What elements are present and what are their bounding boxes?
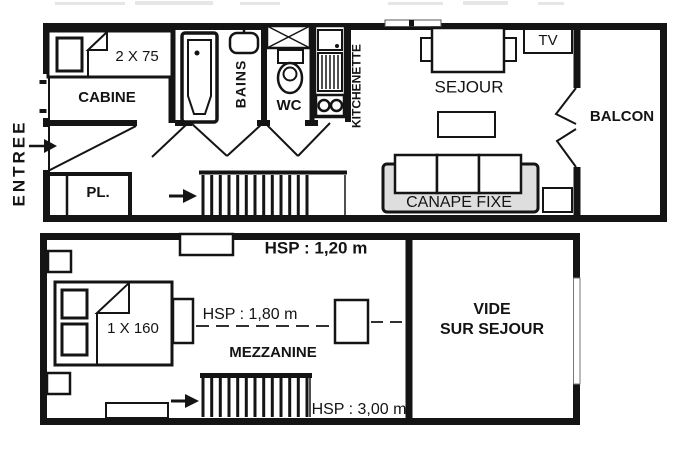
wall-cabinet-symbol — [48, 251, 71, 272]
shower-vent-symbol — [267, 26, 310, 48]
wc-label: WC — [277, 98, 302, 115]
nightstand-symbol — [173, 299, 193, 343]
mezzanine-label: MEZZANINE — [229, 345, 317, 362]
sofa-label: CANAPE FIXE — [406, 194, 512, 212]
dining-table-symbol — [421, 28, 516, 72]
toilet-symbol — [278, 50, 303, 93]
mezzanine-post-symbol — [335, 300, 368, 343]
mezzanine-bed-label: 1 X 160 — [107, 321, 159, 338]
entree-label: ENTREE — [11, 120, 30, 207]
low-cabinet-symbol — [106, 403, 168, 418]
floor-plan-linework — [0, 0, 693, 454]
vide-window — [574, 278, 581, 384]
coffee-table-symbol — [438, 112, 495, 137]
window-mullion — [409, 20, 414, 27]
vide-label-line2: SUR SEJOUR — [440, 321, 544, 339]
window-mullion — [40, 109, 47, 113]
vide-label-line1: VIDE — [473, 301, 510, 319]
placard-label: PL. — [86, 185, 109, 202]
hsp-300-label: HSP : 3,00 m — [312, 401, 407, 419]
side-table-symbol — [543, 188, 572, 212]
window-mullion — [40, 80, 47, 84]
balcon-label: BALCON — [590, 109, 654, 126]
sejour-label: SEJOUR — [435, 79, 504, 98]
kitchenette-label: KITCHENETTE — [350, 44, 363, 128]
cabine-label: CABINE — [78, 90, 136, 107]
bains-label: BAINS — [233, 60, 248, 109]
floor-plan-page: ENTREE CABINE 2 X 75 PL. BAINS WC KITCHE… — [0, 0, 693, 454]
hsp-180-label: HSP : 1,80 m — [203, 306, 298, 324]
kitchenette-appliances-symbol — [315, 26, 345, 117]
cabine-bed-label: 2 X 75 — [115, 49, 158, 66]
roof-window-symbol — [180, 234, 233, 255]
hsp-120-label: HSP : 1,20 m — [265, 240, 368, 259]
bathtub-symbol — [182, 33, 217, 122]
tv-label: TV — [538, 33, 557, 50]
wall-cabinet-symbol — [47, 373, 70, 394]
